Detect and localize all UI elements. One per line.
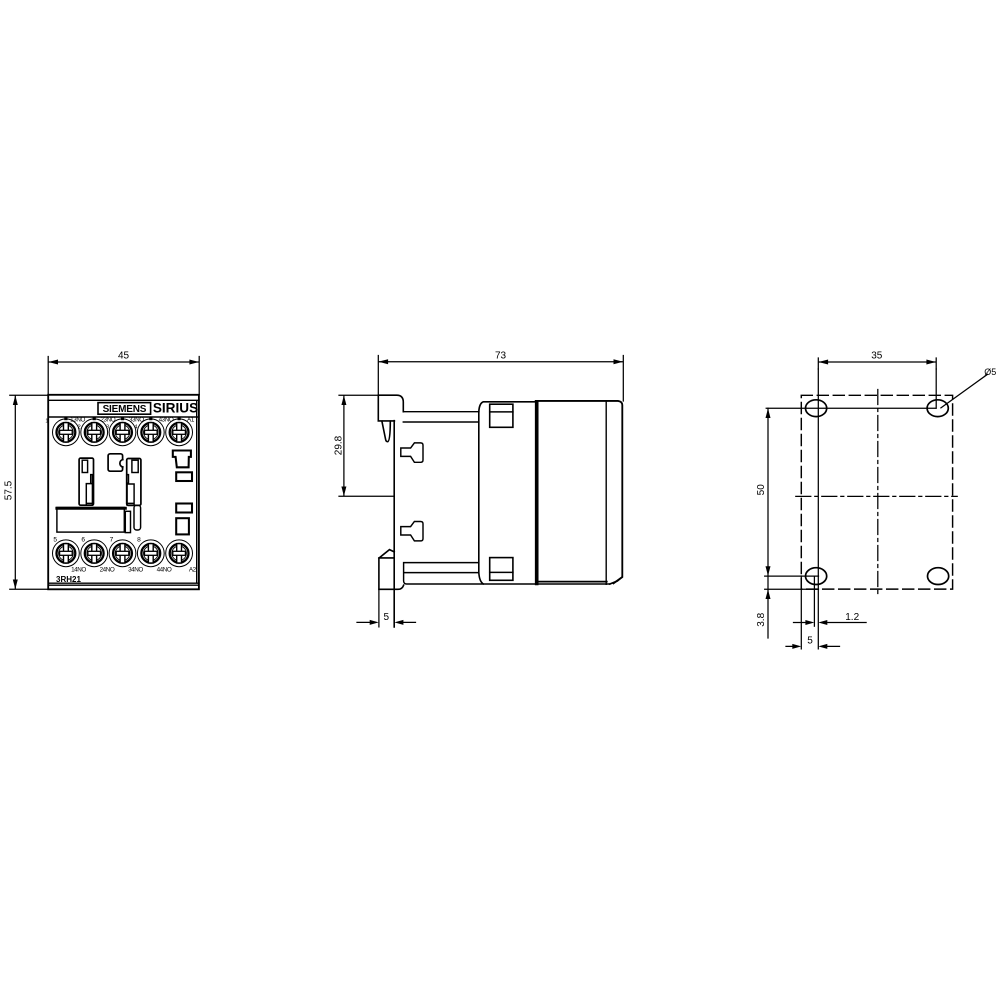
svg-text:1: 1 (45, 418, 48, 424)
svg-text:24NO: 24NO (100, 566, 115, 573)
svg-text:5: 5 (53, 536, 57, 543)
svg-text:5: 5 (807, 635, 813, 646)
svg-text:8: 8 (137, 536, 141, 543)
svg-text:SIRIUS: SIRIUS (153, 401, 198, 416)
svg-text:6: 6 (81, 536, 85, 543)
svg-text:4: 4 (134, 425, 137, 431)
svg-text:A2: A2 (189, 566, 197, 573)
svg-text:34NO: 34NO (128, 566, 143, 573)
svg-text:57.5: 57.5 (4, 480, 15, 500)
svg-text:1.2: 1.2 (845, 612, 859, 623)
svg-text:A1: A1 (187, 416, 195, 423)
svg-text:35: 35 (871, 351, 883, 362)
svg-text:13NO: 13NO (70, 416, 85, 423)
svg-text:2: 2 (78, 425, 81, 431)
svg-text:29.8: 29.8 (334, 435, 345, 455)
svg-text:73: 73 (495, 350, 507, 361)
svg-text:43NO: 43NO (159, 416, 174, 423)
svg-text:23NO: 23NO (100, 416, 115, 423)
svg-text:44NO: 44NO (157, 566, 172, 573)
svg-text:14NO: 14NO (71, 566, 86, 573)
svg-text:3RH21: 3RH21 (56, 575, 81, 584)
svg-text:50: 50 (756, 484, 767, 496)
svg-text:5: 5 (384, 612, 390, 623)
svg-text:45: 45 (118, 351, 130, 362)
svg-text:7: 7 (110, 536, 114, 543)
svg-text:3.8: 3.8 (756, 612, 767, 626)
svg-text:Ø5: Ø5 (984, 367, 996, 377)
svg-text:3: 3 (106, 425, 109, 431)
svg-text:SIEMENS: SIEMENS (103, 404, 147, 415)
svg-text:33NO: 33NO (129, 416, 144, 423)
